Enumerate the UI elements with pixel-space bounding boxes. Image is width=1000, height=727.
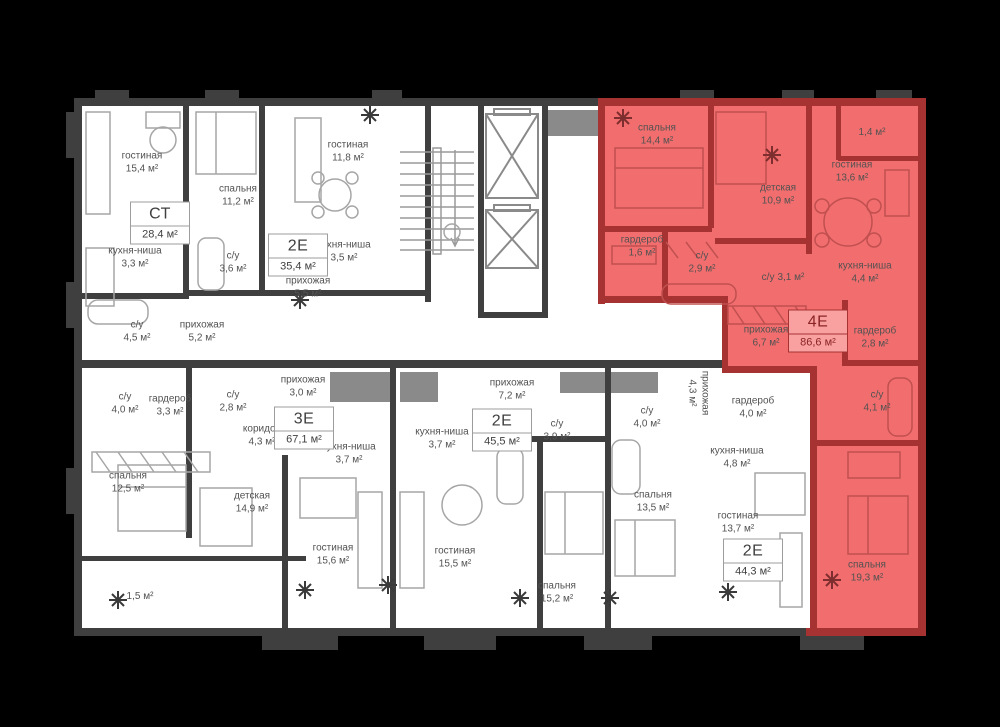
apartment-badge-4e-selected[interactable]: 4Е 86,6 м² [788, 310, 848, 353]
apartment-code: 2Е [724, 540, 782, 563]
apartment-code: 3Е [275, 408, 333, 431]
apartment-area: 28,4 м² [131, 226, 189, 244]
apartment-area: 44,3 м² [724, 563, 782, 581]
apartment-badge-3e-67[interactable]: 3Е 67,1 м² [274, 407, 334, 450]
apartment-badge-2e-35[interactable]: 2Е 35,4 м² [268, 234, 328, 277]
apartment-area: 35,4 м² [269, 258, 327, 276]
apartment-area: 45,5 м² [473, 433, 531, 451]
apartment-badge-2e-45[interactable]: 2Е 45,5 м² [472, 409, 532, 452]
apartment-badge-st[interactable]: СТ 28,4 м² [130, 202, 190, 245]
apartment-code: 2Е [473, 410, 531, 433]
apartment-area: 86,6 м² [789, 334, 847, 352]
apartment-area: 67,1 м² [275, 431, 333, 449]
apartment-code: 4Е [789, 311, 847, 334]
plan-drawing [0, 0, 1000, 727]
apartment-code: 2Е [269, 235, 327, 258]
apartment-code: СТ [131, 203, 189, 226]
apartment-badge-2e-44[interactable]: 2Е 44,3 м² [723, 539, 783, 582]
floor-plan: гостиная15,4 м² кухня-ниша3,3 м² с/у4,5 … [0, 0, 1000, 727]
